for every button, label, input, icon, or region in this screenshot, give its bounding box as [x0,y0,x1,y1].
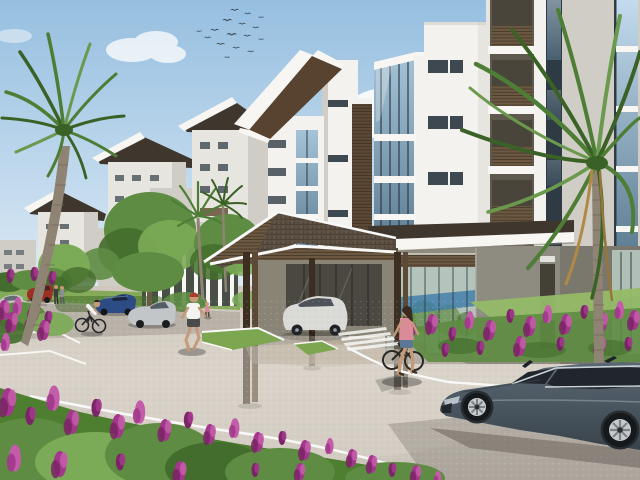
rendering-canvas: Blue daytime sky White clouds Flock of b… [0,0,640,480]
white-tower [424,22,486,244]
rear-wheel [601,411,640,450]
pier [534,0,546,248]
front-wheel [461,391,494,424]
wood-slat-strip [352,98,374,248]
corner-glass-bay: Corner glass bay windows [374,52,424,240]
architectural-rendering: Blue daytime sky White clouds Flock of b… [0,0,640,480]
